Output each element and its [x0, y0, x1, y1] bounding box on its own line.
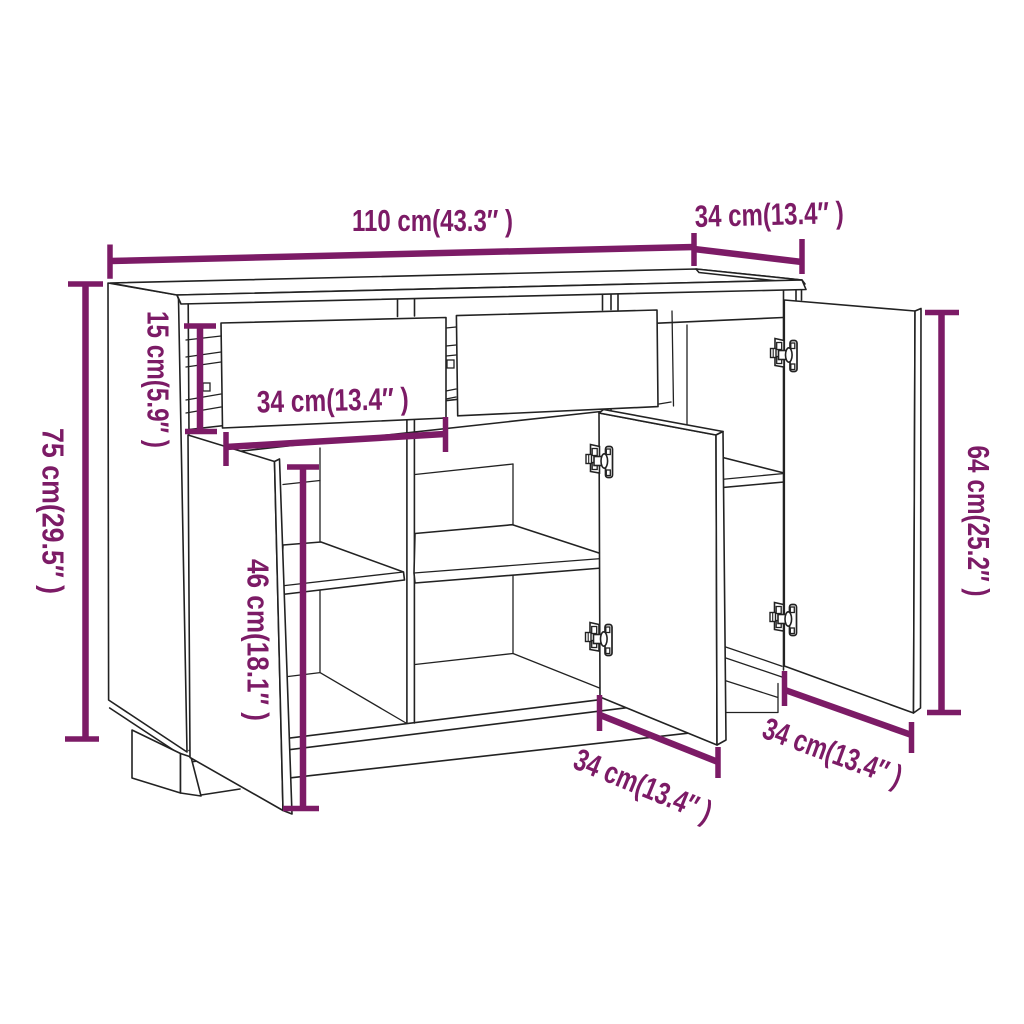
svg-text:34 cm(13.4″ ): 34 cm(13.4″ )	[256, 381, 409, 419]
svg-text:64 cm(25.2″ ): 64 cm(25.2″ )	[961, 446, 996, 597]
svg-text:75 cm(29.5″ ): 75 cm(29.5″ )	[36, 428, 71, 594]
svg-text:34 cm(13.4″ ): 34 cm(13.4″ )	[694, 195, 844, 234]
svg-text:110 cm(43.3″ ): 110 cm(43.3″ )	[352, 203, 513, 238]
svg-text:46 cm(18.1″ ): 46 cm(18.1″ )	[241, 559, 276, 721]
svg-text:15 cm(5.9″ ): 15 cm(5.9″ )	[141, 311, 176, 448]
